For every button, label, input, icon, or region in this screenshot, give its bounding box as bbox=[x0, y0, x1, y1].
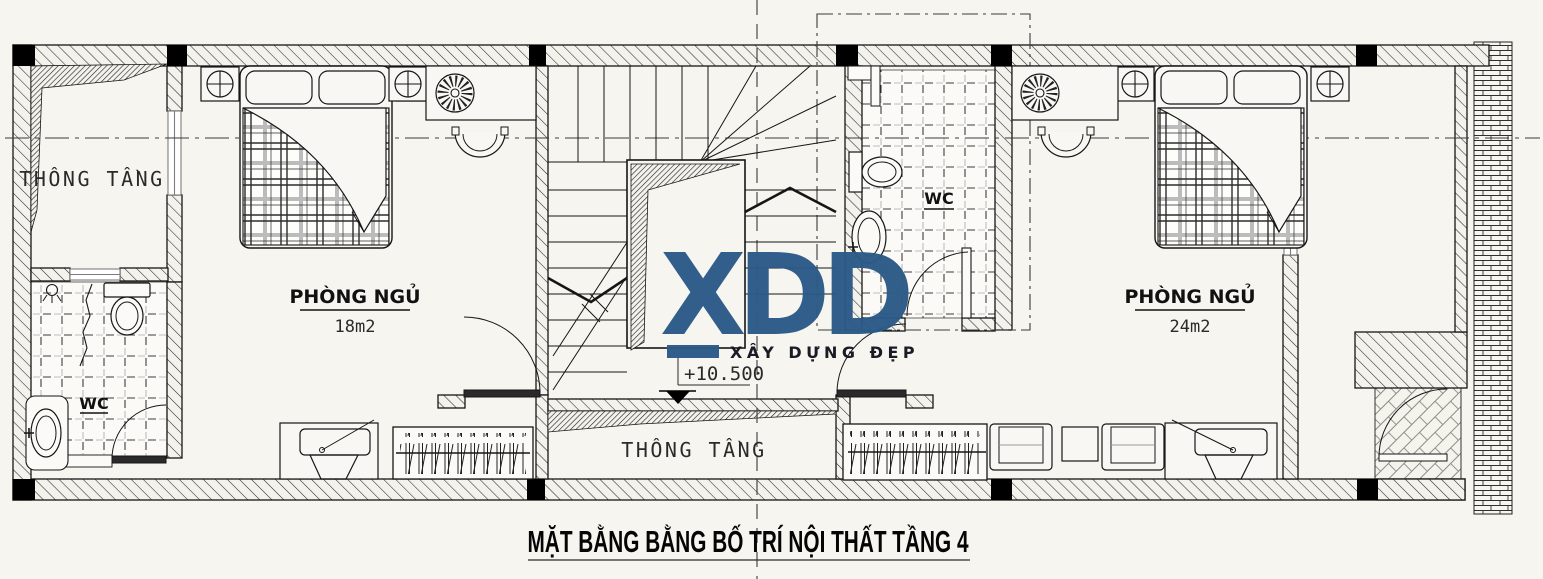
wall-top bbox=[13, 45, 1489, 66]
bedroom-left-area: 18m2 bbox=[335, 317, 376, 337]
bed-right bbox=[1155, 66, 1307, 248]
nightstand-lamp-icon bbox=[1116, 67, 1154, 101]
nightstand-lamp-icon bbox=[201, 67, 239, 101]
ceiling-fan-icon bbox=[436, 74, 474, 112]
wardrobe-right bbox=[843, 424, 987, 480]
armchair-icon bbox=[1102, 424, 1164, 470]
watermark-tagline: XÂY DỰNG ĐẸP bbox=[730, 343, 919, 362]
level-value: +10.500 bbox=[684, 363, 764, 385]
watermark-bar bbox=[667, 345, 719, 358]
armchair-icon bbox=[990, 424, 1052, 470]
ceiling-fan-icon bbox=[1021, 74, 1059, 112]
bedroom-right-area: 24m2 bbox=[1170, 317, 1211, 337]
wc-middle-label: WC bbox=[924, 189, 953, 208]
wall-bottom bbox=[13, 479, 1465, 500]
wall-balcony-outer bbox=[1455, 66, 1467, 332]
nightstand-lamp-icon bbox=[1311, 67, 1349, 101]
desk-right bbox=[1165, 420, 1277, 479]
sink-icon bbox=[24, 396, 68, 470]
bedroom-left-label: PHÒNG NGỦ bbox=[289, 283, 420, 308]
wall-wc-middle-right bbox=[995, 66, 1012, 330]
window-void-bottom-wall bbox=[70, 269, 120, 280]
side-table bbox=[1062, 427, 1098, 461]
watermark: XDD XÂY DỰNG ĐẸP bbox=[660, 231, 919, 362]
exterior-brick-wall bbox=[1474, 42, 1512, 514]
wc-left-label: WC bbox=[79, 394, 108, 413]
drawing-title-block: MẶT BẰNG BẰNG BỐ TRÍ NỘI THẤT TẦNG 4 bbox=[528, 523, 971, 560]
floor-plan-canvas: THÔNG TẦNG THÔNG TẦNG PHÒNG NGỦ 18m2 PHÒ… bbox=[0, 0, 1543, 579]
watermark-logo: XDD bbox=[660, 231, 909, 361]
void-top-left-label: THÔNG TẦNG bbox=[19, 167, 164, 191]
bedroom-right-label: PHÒNG NGỦ bbox=[1124, 283, 1255, 308]
void-bottom-label: THÔNG TẦNG bbox=[621, 438, 766, 462]
balcony-planter bbox=[1355, 332, 1467, 388]
wardrobe-left bbox=[393, 427, 533, 479]
wall-void-bottom-top bbox=[548, 399, 838, 411]
drawing-title: MẶT BẰNG BẰNG BỐ TRÍ NỘI THẤT TẦNG 4 bbox=[528, 523, 970, 559]
desk-left bbox=[280, 420, 378, 479]
window-void-left-wall bbox=[168, 111, 181, 195]
bed-left bbox=[240, 66, 392, 248]
wall-stair-left bbox=[536, 66, 548, 395]
nightstand-lamp-icon bbox=[389, 67, 427, 101]
